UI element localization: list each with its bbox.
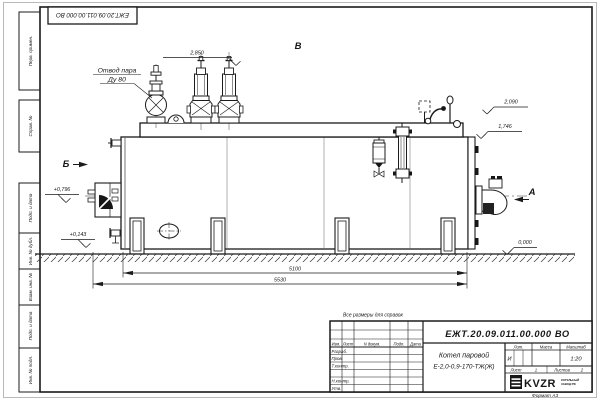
elevation-0143: +0,143 — [70, 232, 87, 238]
sheet-label: Лист — [509, 367, 521, 372]
format-note: Формат А3 — [532, 393, 559, 399]
margin-label-podp-data-2: Подп. и дата — [28, 311, 33, 340]
margin-label-inv-dubl: Инв. № дубл. — [28, 237, 33, 265]
margin-label-podp-data-1: Подп. и дата — [28, 193, 33, 222]
steam-outlet-label-line2: Ду 80 — [107, 77, 126, 84]
top-stamp-number: ЕЖТ.20.09.011.00.000 ВО — [56, 11, 129, 18]
margin-label-sprav-no: Справ. № — [28, 116, 33, 137]
elevation-2850: 2,850 — [189, 51, 204, 57]
company-name-line2: ЗАВОД РФ — [561, 382, 576, 386]
row-nkontr: Н.контр. — [332, 379, 350, 384]
row-tkontr: Т.контр. — [332, 364, 349, 369]
top-stamp-box: ЕЖТ.20.09.011.00.000 ВО — [48, 7, 137, 24]
dimension-5100: 5100 — [289, 267, 301, 273]
lit-header: Лит. — [513, 344, 524, 349]
col-header-ndoc: N докум. — [364, 341, 381, 346]
boiler-drawing-svg: Перв. примен. Справ. № Подп. и дата Инв.… — [0, 0, 600, 400]
col-header-data: Дата — [409, 341, 422, 346]
scale-value: 1:20 — [570, 357, 582, 363]
view-label-v: В — [295, 41, 302, 52]
titleblock-doc-number: ЕЖТ.20.09.011.00.000 ВО — [445, 329, 570, 339]
elevation-0000: 0,000 — [518, 240, 532, 246]
product-name-line2: Е-2,0-0,9-170-ТЖ(Ж) — [433, 364, 494, 371]
dimension-5530: 5530 — [274, 278, 286, 284]
reference-note: Все размеры для справок — [343, 313, 404, 319]
margin-label-inv-podl: Инв. № подл. — [28, 356, 33, 385]
elevation-0796: +0,796 — [54, 187, 71, 193]
drawing-sheet: Перв. примен. Справ. № Подп. и дата Инв.… — [0, 0, 600, 400]
row-prov: Пров. — [332, 356, 343, 361]
elevation-2090: 2,090 — [503, 100, 518, 106]
row-razrab: Разраб. — [332, 349, 348, 354]
col-header-list: Лист — [342, 341, 354, 346]
sheets-label: Листов — [553, 367, 570, 372]
view-label-a: А — [528, 187, 536, 198]
rear-door — [468, 137, 475, 249]
company-logo-text: KVZR — [524, 378, 556, 390]
col-header-izm: Изм. — [332, 341, 341, 346]
col-header-podp: Подп. — [394, 341, 405, 346]
elevation-1746: 1,746 — [498, 124, 512, 130]
row-utv: Утв. — [332, 386, 342, 391]
ground-line — [35, 254, 575, 262]
steam-outlet-label-line1: Отвод пара — [98, 67, 137, 75]
mass-header: Масса — [540, 344, 553, 349]
margin-label-vzam-inv: Взам. инв. № — [28, 273, 33, 301]
boiler-shell — [121, 137, 468, 249]
product-name-line1: Котел паровой — [439, 352, 489, 360]
scale-header: Масштаб — [566, 344, 586, 349]
view-label-b: Б — [63, 159, 70, 170]
margin-label-perv-primen: Перв. примен. — [28, 36, 33, 67]
boiler-top-plate — [140, 123, 463, 137]
